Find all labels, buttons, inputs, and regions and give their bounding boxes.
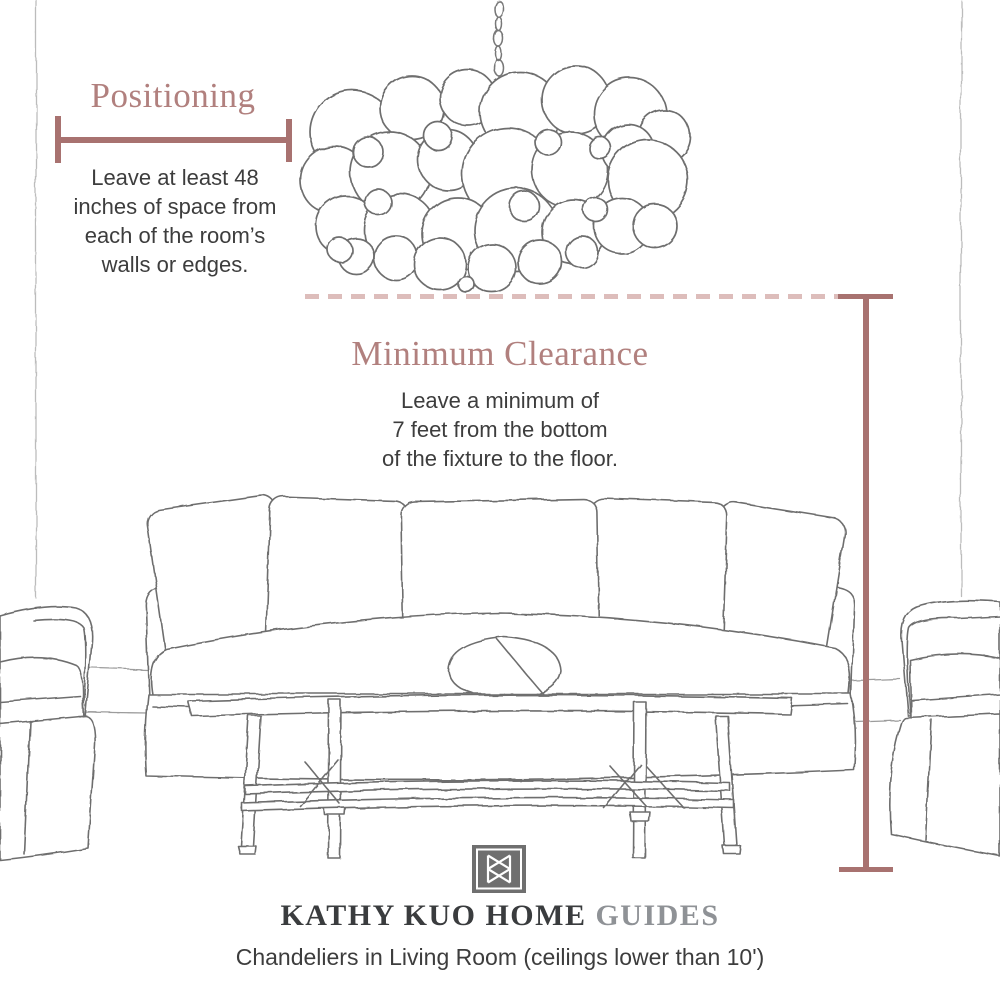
left-armchair-icon: [0, 607, 95, 860]
positioning-line-4: walls or edges.: [35, 250, 315, 279]
ceiling-dashed-line: [305, 294, 838, 299]
positioning-measure-right-cap: [286, 119, 292, 162]
positioning-line-2: inches of space from: [35, 192, 315, 221]
kathy-kuo-monogram-icon: [472, 845, 526, 893]
positioning-line-1: Leave at least 48: [35, 163, 315, 192]
guide-subtitle: Chandeliers in Living Room (ceilings low…: [0, 944, 1000, 971]
infographic-page: { "positioning": { "title": "Positioning…: [0, 0, 1000, 1000]
clearance-measure-bottom-cap: [839, 867, 893, 872]
brand-line: KATHY KUO HOMEGUIDES: [0, 899, 1000, 933]
clearance-line-2: 7 feet from the bottom: [300, 415, 700, 444]
positioning-line-3: each of the room’s: [35, 221, 315, 250]
clearance-measure-line: [863, 294, 869, 872]
positioning-description: Leave at least 48 inches of space from e…: [35, 163, 315, 279]
positioning-measure-left-cap: [55, 116, 61, 163]
right-armchair-icon: [890, 601, 1000, 856]
clearance-description: Leave a minimum of 7 feet from the botto…: [300, 386, 700, 473]
brand-collection: GUIDES: [595, 899, 719, 932]
positioning-title: Positioning: [30, 76, 316, 116]
chandelier-icon: [300, 66, 690, 292]
clearance-line-1: Leave a minimum of: [300, 386, 700, 415]
clearance-title: Minimum Clearance: [300, 334, 700, 374]
chandelier-chain: [495, 1, 504, 88]
positioning-measure-line: [55, 137, 292, 143]
brand-name: KATHY KUO HOME: [280, 899, 586, 932]
clearance-line-3: of the fixture to the floor.: [300, 444, 700, 473]
